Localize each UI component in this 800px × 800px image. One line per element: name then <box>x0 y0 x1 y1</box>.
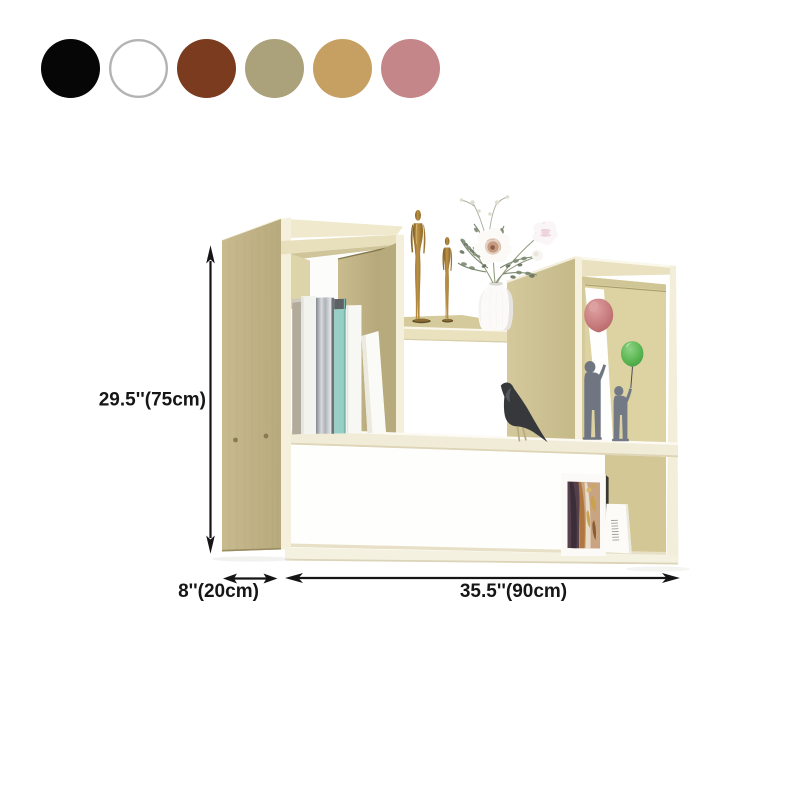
svg-text:29.5''(75cm): 29.5''(75cm) <box>99 390 206 411</box>
svg-text:35.5''(90cm): 35.5''(90cm) <box>460 581 567 602</box>
svg-text:8''(20cm): 8''(20cm) <box>178 581 259 602</box>
